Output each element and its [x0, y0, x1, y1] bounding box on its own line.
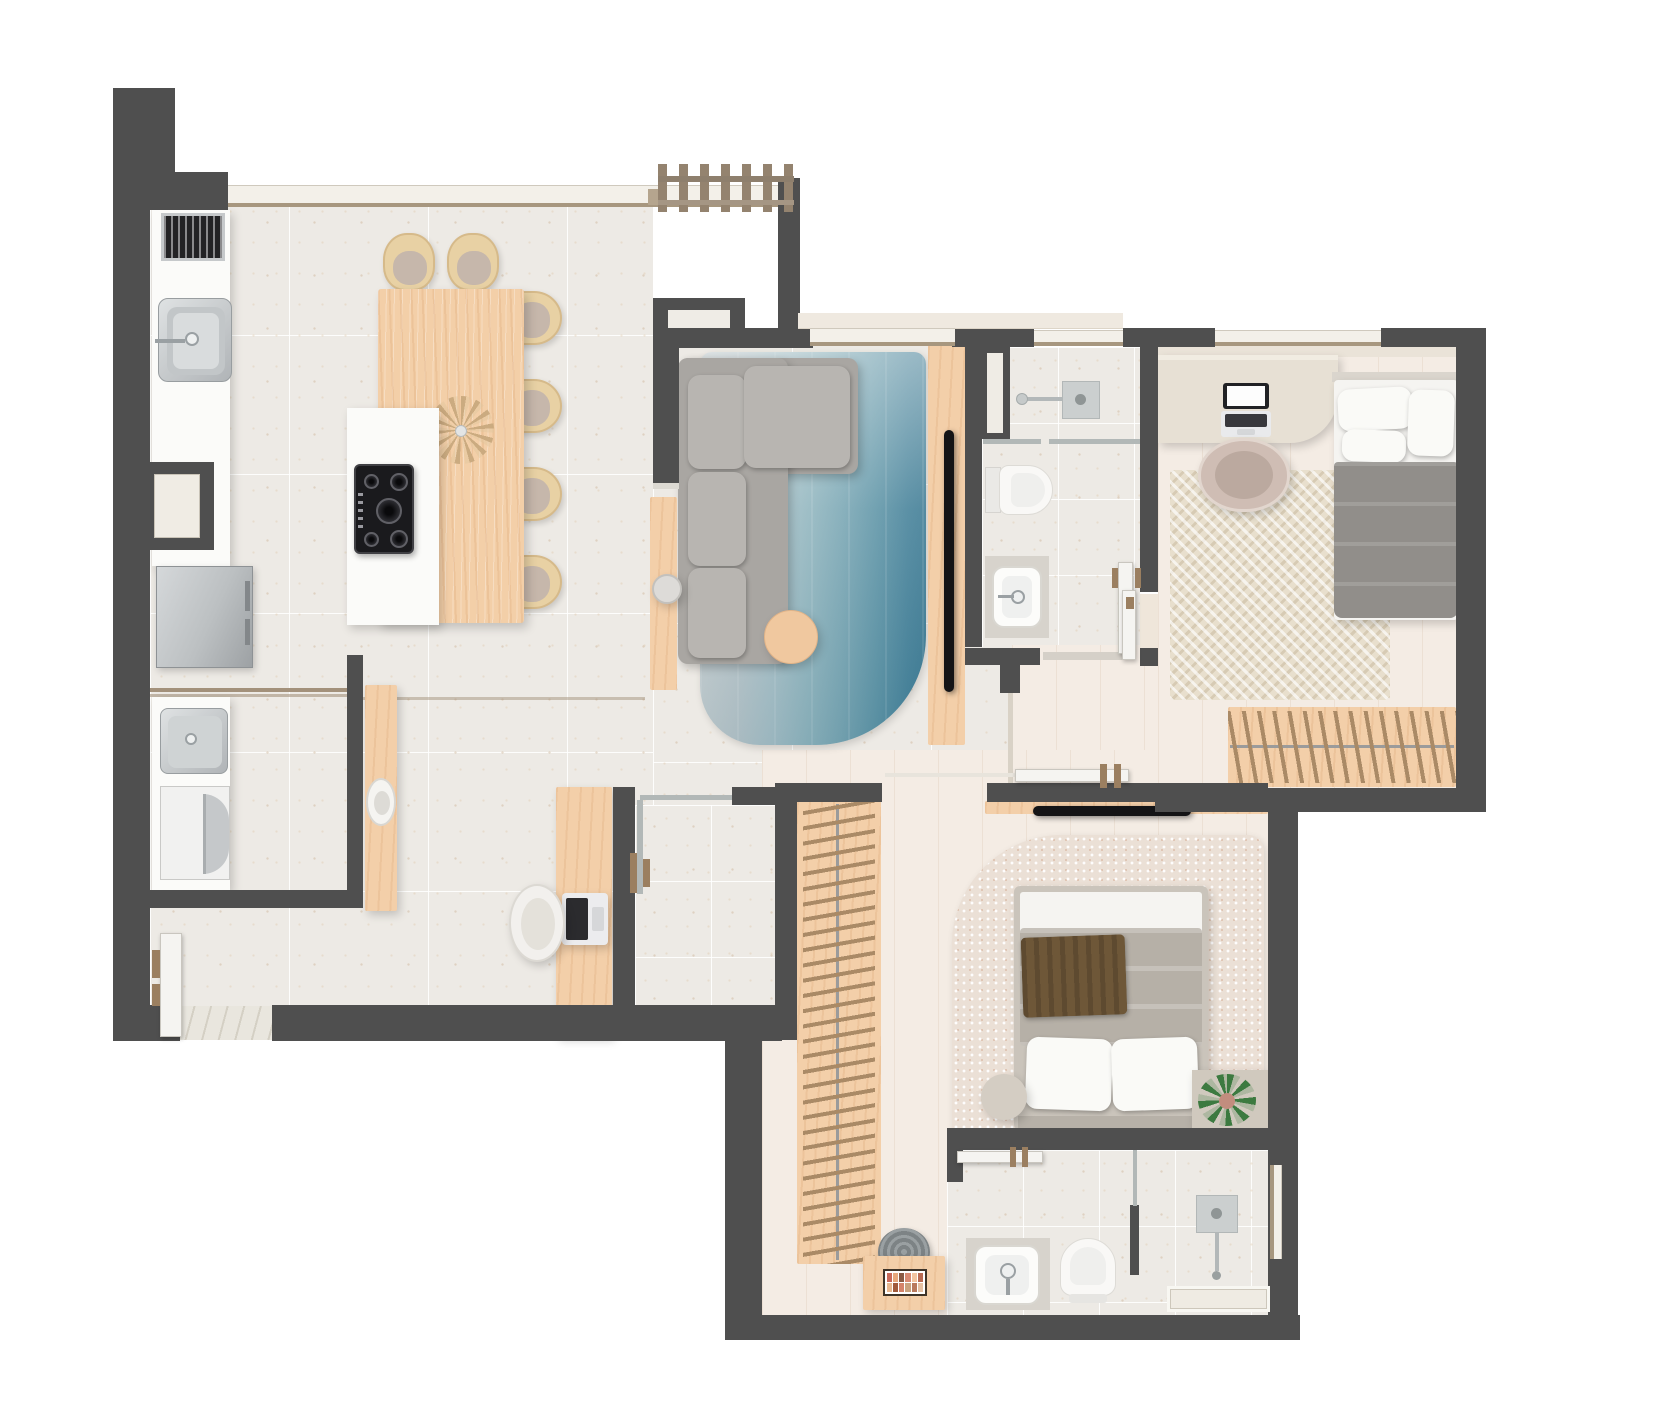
wall-closet-left — [725, 1040, 762, 1320]
laptop-1-keys — [1225, 414, 1267, 427]
vanity-master — [966, 1238, 1050, 1310]
desk-chair — [509, 884, 565, 962]
plant-pot — [1219, 1093, 1235, 1109]
threshold-entry-marble — [177, 1006, 272, 1040]
wall-master-top — [987, 783, 1268, 802]
bed-1-pillow-1 — [1337, 386, 1413, 432]
fridge-handle-2 — [245, 619, 250, 645]
door-bedroom-1 — [1122, 590, 1136, 660]
island-cooktop — [354, 464, 414, 554]
coffee-table — [764, 610, 818, 664]
wall-master-bath-top — [947, 1128, 1268, 1150]
laptop-trackpad — [592, 907, 604, 931]
wardrobe-master-hangers — [803, 800, 875, 1264]
wall-bottom-master — [725, 1315, 1300, 1340]
laundry-sink — [160, 708, 228, 774]
toilet-social-seat — [1011, 473, 1045, 507]
shower-social — [1016, 381, 1100, 421]
shower-plate-dot — [1075, 394, 1086, 405]
laundry-faucet — [185, 733, 197, 745]
cooktop-knobs — [358, 493, 363, 529]
door-bath-social-handle-2 — [1135, 568, 1141, 588]
wall-master-right — [1268, 812, 1298, 1340]
door-master — [1015, 769, 1129, 782]
laundry-door-track-1 — [150, 688, 348, 692]
shower-glass-1 — [983, 439, 1041, 444]
laptop-keyboard — [566, 898, 588, 940]
pergola — [658, 164, 794, 212]
kitchen-sink — [158, 298, 232, 382]
toilet-master-seat — [1070, 1247, 1106, 1285]
glass-wc-top — [640, 795, 732, 800]
pergola-rail-2 — [658, 200, 794, 205]
vanity-master-faucet — [1000, 1263, 1016, 1279]
tv-living — [944, 430, 954, 692]
chair-seat-2 — [457, 251, 491, 285]
niche-master-bath — [1167, 1286, 1270, 1312]
wall-bedroom-1-left-stub — [1140, 648, 1158, 666]
console-bowl — [366, 778, 396, 826]
wall-bath-social-top — [952, 327, 1034, 347]
vanity-social-spout — [998, 595, 1014, 598]
chair-bedroom-1 — [1198, 438, 1290, 512]
sofa-cushion-2 — [688, 472, 746, 566]
ledge-living-top — [798, 313, 1123, 329]
wall-right — [1456, 328, 1486, 812]
sofa-cushion-1 — [688, 375, 746, 469]
toilet-master-base — [1069, 1294, 1107, 1303]
wall-niche-left — [140, 462, 214, 550]
door-bedroom-1-handle — [1126, 597, 1134, 609]
vanity-social — [985, 556, 1049, 638]
palette-cell — [918, 1273, 923, 1282]
wall-bath-social-stub — [1000, 665, 1020, 693]
palette-cell — [905, 1283, 910, 1292]
door-master-bracket-1 — [1100, 764, 1107, 788]
door-bath-master-bracket-2 — [1022, 1147, 1028, 1167]
wall-living-L-b — [653, 328, 813, 348]
dresser-closet — [863, 1256, 945, 1310]
console-bowl-inner — [374, 791, 390, 815]
desk-laptop — [562, 893, 608, 945]
sofa-chaise-cushion — [744, 366, 850, 468]
window-bedroom-1-top — [1215, 330, 1381, 346]
refrigerator — [156, 566, 253, 668]
shower-master-pipe — [1215, 1233, 1219, 1271]
palette-cell — [887, 1283, 892, 1292]
wall-living-cap — [653, 483, 679, 489]
pergola-rail-1 — [658, 176, 794, 182]
wall-bedroom-1-top-left — [1123, 328, 1215, 347]
door-bath-social-handle-1 — [1112, 568, 1118, 588]
door-entry-handle-1 — [152, 950, 160, 978]
bed-1-pillow-3 — [1407, 389, 1455, 457]
palette-cell — [918, 1283, 923, 1292]
wardrobe-master — [797, 800, 881, 1264]
desk-chair-seat — [521, 898, 555, 950]
palette-cell — [899, 1283, 904, 1292]
palette-cell — [912, 1283, 917, 1292]
makeup-palette — [883, 1269, 927, 1296]
kitchen-door-track — [363, 697, 645, 700]
door-bath-master-bracket-1 — [1010, 1147, 1016, 1167]
bed-master-pillow-1 — [1025, 1037, 1113, 1112]
bed-master-pillow-2 — [1111, 1037, 1199, 1112]
wardrobe-bedroom-1 — [1228, 707, 1456, 787]
shower-master — [1196, 1195, 1238, 1281]
floor-plan-canvas — [0, 0, 1667, 1415]
handle-wc-2 — [643, 859, 650, 887]
toilet-social — [985, 465, 1055, 515]
window-bath-social-top — [1034, 330, 1123, 346]
washing-machine — [160, 786, 230, 880]
desk-bedroom-1-edge — [1158, 355, 1338, 360]
shower-master-fitting — [1212, 1271, 1221, 1280]
bed-1-duvet — [1334, 462, 1458, 618]
burner-3 — [364, 532, 379, 547]
wall-wc-top — [732, 787, 775, 805]
wall-bottom-b — [272, 1005, 782, 1041]
shower-arm-head — [1016, 393, 1028, 405]
palette-cell — [905, 1273, 910, 1282]
wall-wc-right — [775, 787, 797, 1040]
wall-living-L-vert — [653, 347, 679, 489]
wall-laundry-bottom — [150, 890, 363, 908]
dining-chair-2 — [447, 233, 499, 291]
wardrobe-1-hangers — [1228, 711, 1456, 783]
duct-shaft — [980, 347, 1010, 439]
door-entry-handle-2 — [152, 984, 160, 1006]
wall-closet-top — [775, 783, 882, 802]
palette-cell — [893, 1283, 898, 1292]
pouf-master — [981, 1074, 1027, 1120]
shower-glass-2 — [1049, 439, 1140, 444]
bed-master-throw — [1021, 934, 1128, 1018]
sink-faucet-arm — [155, 339, 185, 343]
vanity-master-basin — [974, 1245, 1040, 1305]
handles-wc — [630, 853, 652, 893]
palette-cell — [893, 1273, 898, 1282]
plant-master — [1198, 1074, 1256, 1126]
window-living-top — [810, 328, 955, 346]
fridge-handle-1 — [245, 581, 250, 611]
wall-wc-left — [613, 787, 635, 1010]
wall-left — [113, 196, 150, 1041]
washer-door-line — [203, 794, 206, 874]
sofa-cushion-3 — [688, 568, 746, 658]
burner-center — [376, 498, 402, 524]
wall-bath-social-bottom — [965, 648, 1040, 665]
door-bath-master — [957, 1151, 1043, 1163]
side-table — [652, 574, 682, 604]
shower-master-dot — [1211, 1208, 1222, 1219]
sink-faucet — [185, 332, 199, 346]
wall-bedroom-1-left — [1140, 347, 1158, 592]
laptop-1-pad — [1237, 429, 1255, 435]
divider-master-bath — [1130, 1205, 1139, 1275]
door-master-bracket-2 — [1114, 764, 1121, 788]
bed-1-pillow-2 — [1341, 429, 1406, 463]
floor-wc — [635, 805, 775, 1005]
duct-shaft-inner — [987, 353, 1003, 433]
palette-cell — [887, 1273, 892, 1282]
toilet-master — [1060, 1238, 1116, 1304]
burner-2 — [390, 473, 408, 491]
door-track-master — [885, 773, 1015, 777]
laptop-bedroom-1 — [1221, 383, 1271, 437]
dining-chair-1 — [383, 233, 435, 291]
burner-4 — [390, 530, 408, 548]
bed-master-headboard — [1018, 1116, 1204, 1128]
centerpiece-vase — [455, 425, 467, 437]
laptop-1-screen-inner — [1227, 386, 1265, 406]
niche-left-window — [154, 474, 200, 538]
burner-1 — [364, 474, 379, 489]
palette-cell — [899, 1273, 904, 1282]
window-master-right — [1270, 1165, 1282, 1259]
chair-seat-1 — [393, 251, 427, 285]
chair-bedroom-1-seat — [1215, 451, 1273, 499]
wall-laundry-vert — [347, 655, 363, 893]
glass-master-bath — [1133, 1150, 1137, 1206]
vanity-master-stem — [1006, 1279, 1010, 1295]
wall-living-notch — [668, 310, 730, 330]
door-entry — [160, 933, 182, 1037]
handle-wc-1 — [630, 853, 637, 893]
cooktop-vent-grill — [161, 213, 225, 261]
palette-cell — [912, 1273, 917, 1282]
vanity-social-basin — [992, 566, 1042, 628]
washer-door-arc — [203, 794, 229, 874]
